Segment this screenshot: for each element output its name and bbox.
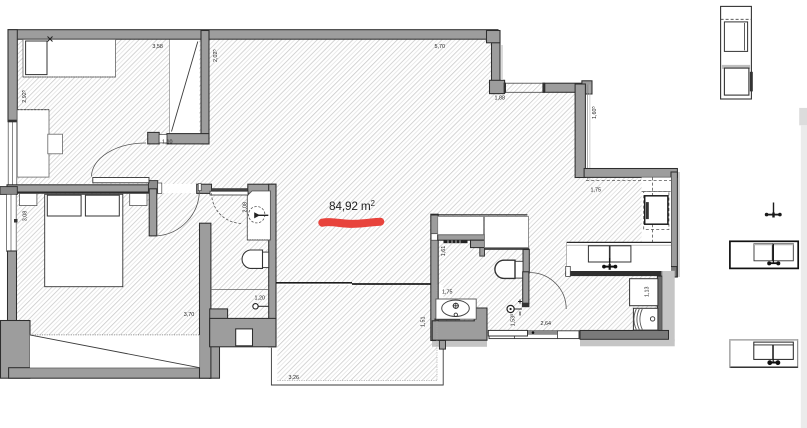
svg-text:2,08: 2,08 <box>243 202 249 213</box>
svg-text:1,75: 1,75 <box>591 187 602 193</box>
svg-text:3,26: 3,26 <box>289 375 300 381</box>
svg-text:2,64: 2,64 <box>541 321 552 327</box>
svg-text:3,70: 3,70 <box>184 312 195 318</box>
svg-text:1,61: 1,61 <box>441 246 447 257</box>
svg-text:3,08: 3,08 <box>23 211 29 222</box>
svg-text:1,13: 1,13 <box>644 287 650 298</box>
svg-text:1,75: 1,75 <box>442 289 453 295</box>
svg-text:1,20: 1,20 <box>255 295 266 301</box>
svg-text:1,88: 1,88 <box>495 95 506 101</box>
svg-text:3,58: 3,58 <box>152 44 163 50</box>
svg-text:1,51: 1,51 <box>420 317 426 328</box>
svg-text:84,92 m2: 84,92 m2 <box>329 199 375 213</box>
svg-text:5,70: 5,70 <box>435 44 446 50</box>
svg-text:1,10: 1,10 <box>162 139 173 145</box>
